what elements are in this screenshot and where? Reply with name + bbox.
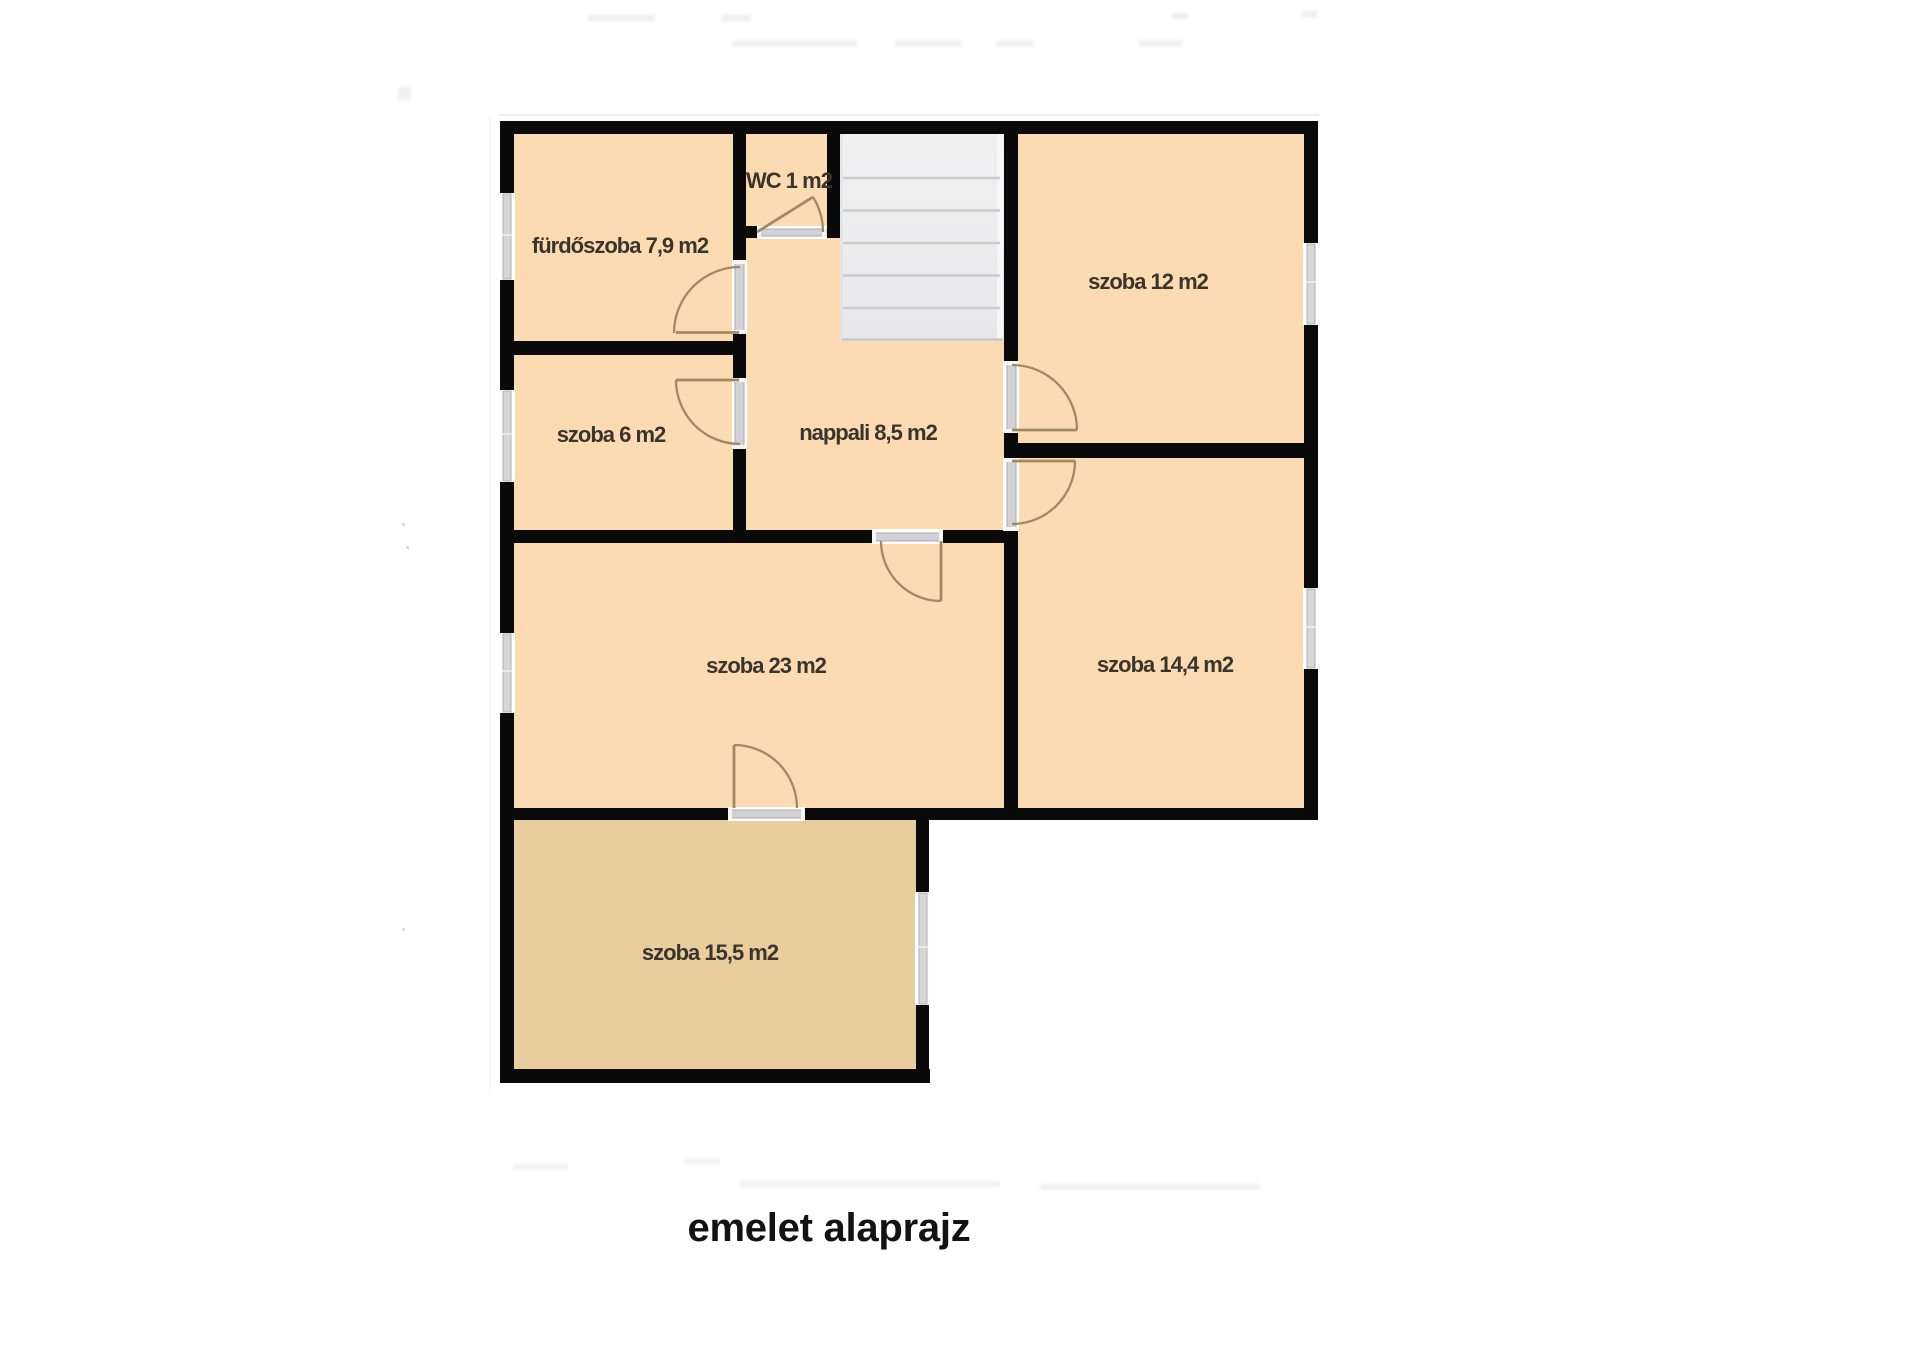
svg-text:fürdőszoba 7,9 m2: fürdőszoba 7,9 m2: [532, 233, 709, 258]
svg-text:WC 1 m2: WC 1 m2: [746, 168, 833, 193]
svg-text:szoba 23 m2: szoba 23 m2: [706, 653, 827, 678]
svg-text:nappali 8,5 m2: nappali 8,5 m2: [799, 420, 937, 445]
svg-text:emelet alaprajz: emelet alaprajz: [687, 1206, 970, 1250]
svg-text:szoba 14,4 m2: szoba 14,4 m2: [1097, 652, 1234, 677]
svg-text:szoba 12 m2: szoba 12 m2: [1088, 269, 1209, 294]
svg-text:szoba 15,5 m2: szoba 15,5 m2: [642, 940, 779, 965]
svg-text:szoba 6 m2: szoba 6 m2: [557, 422, 666, 447]
